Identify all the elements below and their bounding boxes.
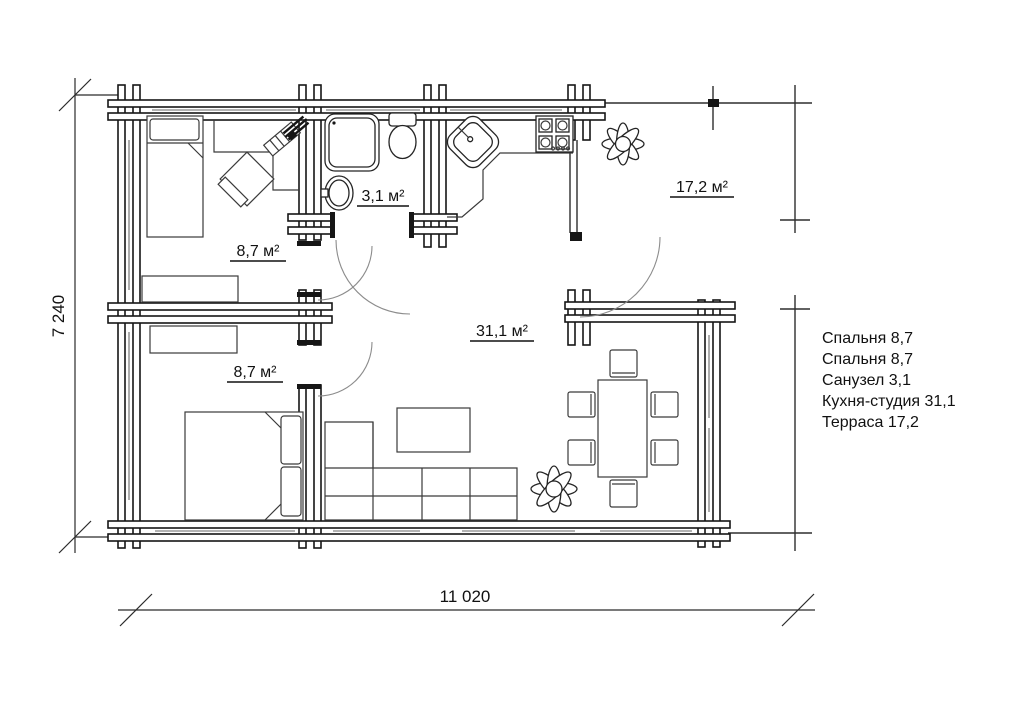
width-dimension-label: 11 020 (440, 587, 491, 606)
bathroom-bottom-wall (288, 227, 332, 234)
legend-item: Терраса 17,2 (822, 414, 919, 431)
kitchen-studio-area-label: 31,1 м² (476, 323, 529, 340)
dining-table (598, 380, 647, 477)
kitchen (443, 112, 573, 217)
bedroom1-area-label: 8,7 м² (236, 243, 280, 260)
bathroom-sink (321, 176, 353, 210)
bedroom1-furniture (142, 116, 309, 302)
living-furniture (325, 350, 678, 520)
room-legend: Спальня 8,7 Спальня 8,7 Санузел 3,1 Кухн… (822, 330, 956, 431)
legend-item: Спальня 8,7 (822, 330, 913, 347)
kitchen-sink (443, 112, 502, 171)
shower (325, 114, 379, 171)
stove (536, 116, 573, 152)
bathroom-bottom-wall (412, 227, 457, 234)
middle-wall (108, 303, 332, 310)
bathroom-area-label: 3,1 м² (361, 188, 405, 205)
coffee-table (397, 408, 470, 452)
floor-plan-drawing: 7 240 11 020 (0, 0, 1024, 724)
single-bed (147, 116, 203, 237)
bedroom1-door-arc (318, 246, 372, 300)
bathroom-bottom-wall (288, 214, 332, 221)
bathroom-door-arc (336, 240, 410, 314)
dining-top-wall (565, 302, 735, 309)
desk-chair (220, 152, 274, 206)
terrace-post-marker (708, 99, 719, 107)
top-wall (108, 100, 605, 107)
right-wall (713, 300, 720, 547)
width-dimension: 11 020 (118, 587, 815, 626)
bottom-wall (108, 534, 730, 541)
doors (297, 140, 660, 396)
legend-item: Кухня-студия 31,1 (822, 393, 956, 410)
double-bed (185, 412, 303, 520)
bedroom2-furniture (150, 326, 303, 520)
toilet (389, 113, 416, 159)
bedroom2-area-label: 8,7 м² (233, 364, 277, 381)
wardrobe (150, 326, 237, 353)
terrace-area-label: 17,2 м² (676, 179, 729, 196)
height-dimension-label: 7 240 (49, 295, 68, 338)
bathroom-right-wall (439, 85, 446, 247)
wardrobe (142, 276, 238, 302)
desk-equipment (264, 122, 301, 156)
plant-icon (531, 466, 577, 512)
dining-set (568, 350, 678, 507)
bathroom-right-wall (424, 85, 431, 247)
terrace-door-hinge (570, 232, 582, 241)
bedroom2-door-arc (318, 342, 372, 396)
legend-item: Спальня 8,7 (822, 351, 913, 368)
bottom-wall (108, 521, 730, 528)
legend-item: Санузел 3,1 (822, 372, 911, 389)
plant-icon (602, 123, 644, 165)
middle-wall (108, 316, 332, 323)
floor-plan-page: 7 240 11 020 (0, 0, 1024, 724)
right-wall (698, 300, 705, 547)
